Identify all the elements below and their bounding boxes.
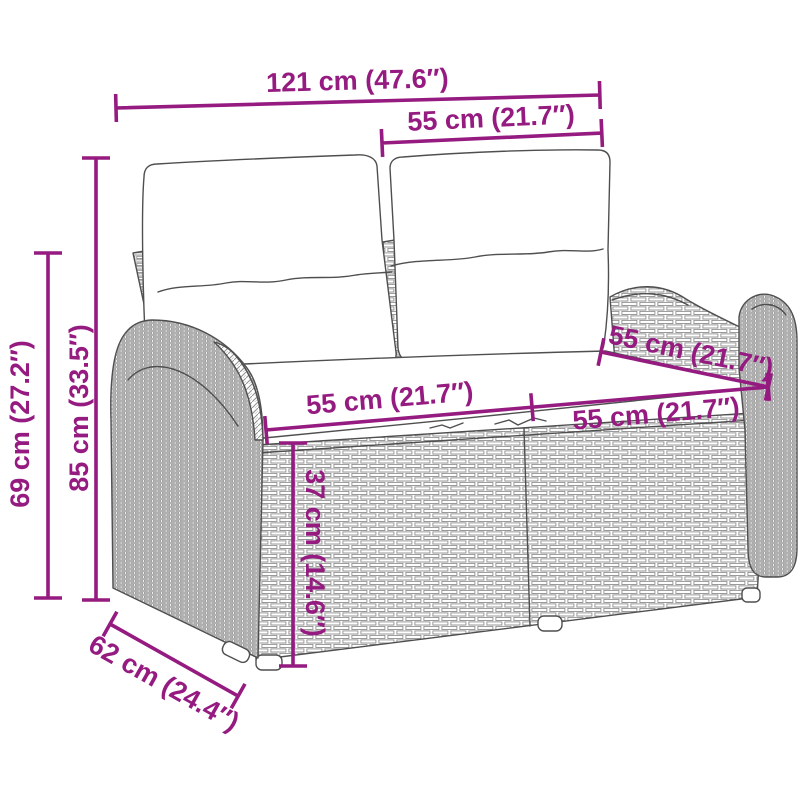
seat-wrinkle [495, 418, 546, 425]
armrest-right [739, 294, 797, 577]
dim-seat-height-label: 37 cm (14.6″) [300, 469, 330, 637]
dim-total-width-label: 121 cm (47.6″) [266, 63, 449, 98]
bench-foot [742, 588, 760, 602]
bench-diagram-svg: 121 cm (47.6″) 55 cm (21.7″) 85 cm (33.5… [0, 0, 800, 800]
dim-base-depth-label: 62 cm (24.4″) [84, 629, 245, 737]
seat-wrinkle-2 [430, 423, 463, 428]
dim-backrest-width: 55 cm (21.7″) [380, 98, 602, 157]
wicker-base [256, 412, 768, 660]
dim-armrest-height: 69 cm (27.2″) [5, 253, 62, 598]
dim-backrest-width-label: 55 cm (21.7″) [407, 99, 576, 137]
dim-armrest-height-label: 69 cm (27.2″) [5, 340, 35, 508]
dim-total-height-label: 85 cm (33.5″) [64, 324, 94, 492]
bench-foot [538, 616, 562, 631]
bench-foot [256, 655, 282, 670]
product-dimension-diagram: 121 cm (47.6″) 55 cm (21.7″) 85 cm (33.5… [0, 0, 800, 800]
dim-total-height: 85 cm (33.5″) [64, 158, 110, 600]
